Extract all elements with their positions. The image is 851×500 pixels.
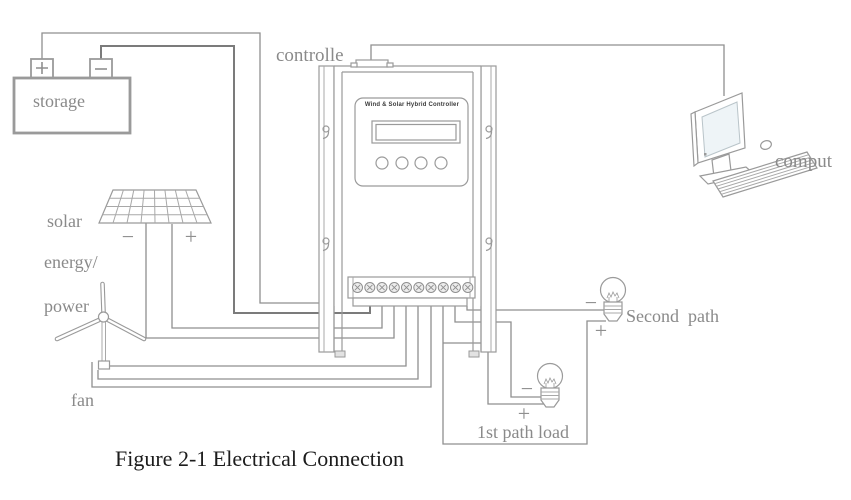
controller-foot	[469, 351, 479, 357]
second-path-label: Second path	[626, 307, 719, 325]
bulb-glass	[538, 364, 563, 389]
solar-minus-sign: −	[122, 226, 134, 248]
second-path-plus-sign: +	[595, 320, 607, 342]
solar-panel-icon	[99, 190, 211, 223]
computer-label: comput	[775, 152, 832, 171]
computer-icon	[691, 93, 817, 197]
mouse	[759, 139, 772, 151]
bulb-glass	[601, 278, 626, 303]
controller-right-flange	[481, 66, 496, 352]
first-path-bulb-icon	[538, 364, 563, 408]
turbine-hub	[99, 312, 109, 322]
first-path-plus-sign: +	[518, 403, 530, 425]
monitor-power-button	[704, 153, 707, 156]
controller-top-connector	[356, 60, 388, 67]
second-path-minus-sign: −	[585, 292, 597, 314]
storage-label: storage	[33, 92, 85, 110]
controller-left-flange	[319, 66, 334, 352]
first-path-minus-sign: −	[521, 378, 533, 400]
second-path-bulb-icon	[601, 278, 626, 322]
wire-wind-phase3	[92, 298, 431, 387]
diagram-canvas	[0, 0, 851, 500]
controller-panel-title: Wind & Solar Hybrid Controller	[356, 102, 468, 108]
wire-wind-phase1	[110, 298, 406, 366]
solar-label-line1: solar	[47, 212, 82, 230]
solar-label-line3: power	[44, 297, 89, 315]
turbine-base	[99, 361, 110, 369]
turbine-tower	[102, 322, 106, 363]
fan-label: fan	[71, 391, 94, 409]
controller-label: controlle	[276, 46, 344, 65]
electrical-connection-diagram: storage controlle comput solar energy/ p…	[0, 0, 851, 500]
solar-plus-sign: +	[185, 226, 197, 248]
bulb-base	[541, 388, 559, 407]
controller-foot	[335, 351, 345, 357]
solar-label-line2: energy/	[44, 253, 98, 271]
figure-caption: Figure 2-1 Electrical Connection	[115, 446, 404, 472]
terminal-strip-lip	[353, 298, 467, 306]
